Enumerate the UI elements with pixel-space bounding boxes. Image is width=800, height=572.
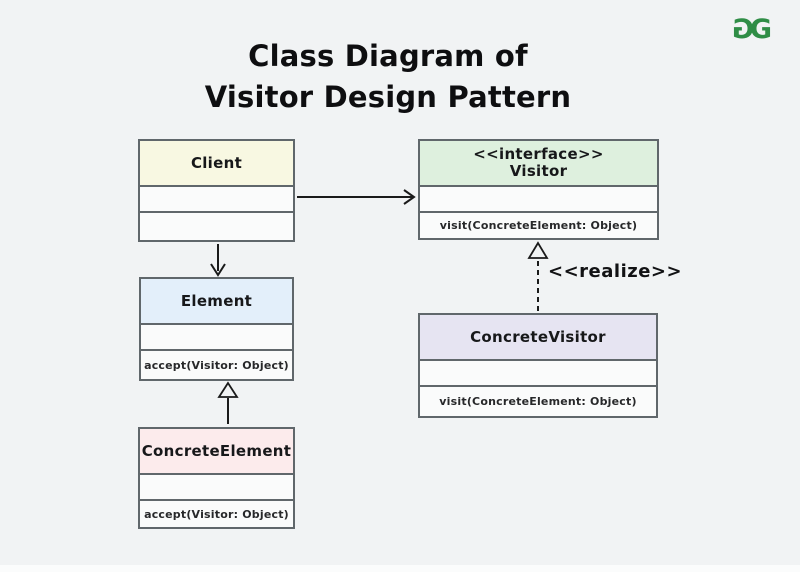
image-bottom-edge (0, 565, 800, 572)
association-arrow-client-visitor (297, 190, 414, 204)
method-text-element: accept(Visitor: Object) (144, 359, 289, 372)
generalization-arrow-concreteelement-element (219, 383, 237, 424)
class-name-client: Client (191, 155, 242, 172)
class-header-concreteelement: ConcreteElement (140, 429, 293, 473)
methods-compartment-element: accept(Visitor: Object) (141, 349, 292, 379)
method-text-concretevisitor: visit(ConcreteElement: Object) (439, 395, 636, 408)
attributes-compartment-element (141, 323, 292, 349)
methods-compartment-client (140, 211, 293, 240)
class-name-visitor: Visitor (510, 163, 568, 180)
class-stereotype-visitor: <<interface>> (473, 146, 603, 163)
realize-stereotype-label: <<realize>> (548, 261, 682, 282)
methods-compartment-visitor: visit(ConcreteElement: Object) (420, 211, 657, 238)
association-arrow-client-element (211, 244, 225, 275)
class-box-visitor: <<interface>> Visitor visit(ConcreteElem… (418, 139, 659, 240)
class-box-client: Client (138, 139, 295, 242)
methods-compartment-concretevisitor: visit(ConcreteElement: Object) (420, 385, 656, 416)
class-box-element: Element accept(Visitor: Object) (139, 277, 294, 381)
diagram-canvas: Class Diagram of Visitor Design Pattern … (0, 0, 800, 572)
realization-arrow-concretevisitor-visitor (529, 243, 547, 311)
class-name-element: Element (181, 293, 252, 310)
class-header-element: Element (141, 279, 292, 323)
class-name-concretevisitor: ConcreteVisitor (470, 329, 606, 346)
methods-compartment-concreteelement: accept(Visitor: Object) (140, 499, 293, 527)
uml-connectors (0, 0, 800, 572)
method-text-concreteelement: accept(Visitor: Object) (144, 508, 289, 521)
class-header-visitor: <<interface>> Visitor (420, 141, 657, 185)
attributes-compartment-concretevisitor (420, 359, 656, 385)
attributes-compartment-concreteelement (140, 473, 293, 499)
class-header-concretevisitor: ConcreteVisitor (420, 315, 656, 359)
class-header-client: Client (140, 141, 293, 185)
class-box-concreteelement: ConcreteElement accept(Visitor: Object) (138, 427, 295, 529)
attributes-compartment-visitor (420, 185, 657, 211)
class-name-concreteelement: ConcreteElement (142, 443, 292, 460)
attributes-compartment-client (140, 185, 293, 211)
method-text-visitor: visit(ConcreteElement: Object) (440, 219, 637, 232)
class-box-concretevisitor: ConcreteVisitor visit(ConcreteElement: O… (418, 313, 658, 418)
